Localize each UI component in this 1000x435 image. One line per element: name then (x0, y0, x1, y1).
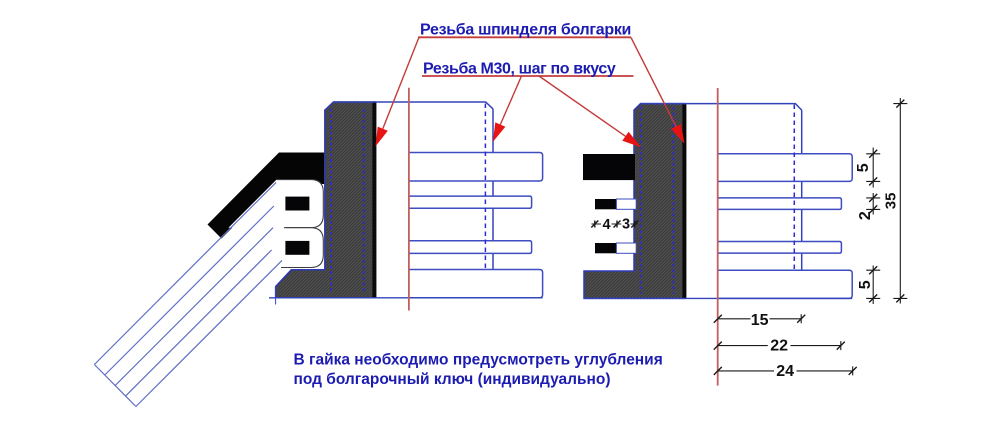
svg-text:2: 2 (857, 211, 874, 220)
svg-text:5: 5 (855, 163, 872, 172)
svg-text:В гайка необходимо предусмотре: В гайка необходимо предусмотреть углубле… (294, 352, 663, 369)
svg-text:5: 5 (857, 280, 874, 289)
svg-text:22: 22 (770, 338, 788, 355)
svg-text:35: 35 (883, 193, 900, 210)
svg-text:Резьба шпинделя болгарки: Резьба шпинделя болгарки (420, 22, 631, 39)
svg-text:15: 15 (751, 312, 769, 329)
svg-text:24: 24 (776, 363, 794, 380)
svg-text:4: 4 (602, 217, 610, 233)
svg-text:под болгарочный ключ (индивиду: под болгарочный ключ (индивидуально) (294, 371, 611, 388)
svg-text:Резьба М30, шаг по вкусу: Резьба М30, шаг по вкусу (423, 61, 616, 78)
svg-text:3: 3 (622, 217, 630, 233)
